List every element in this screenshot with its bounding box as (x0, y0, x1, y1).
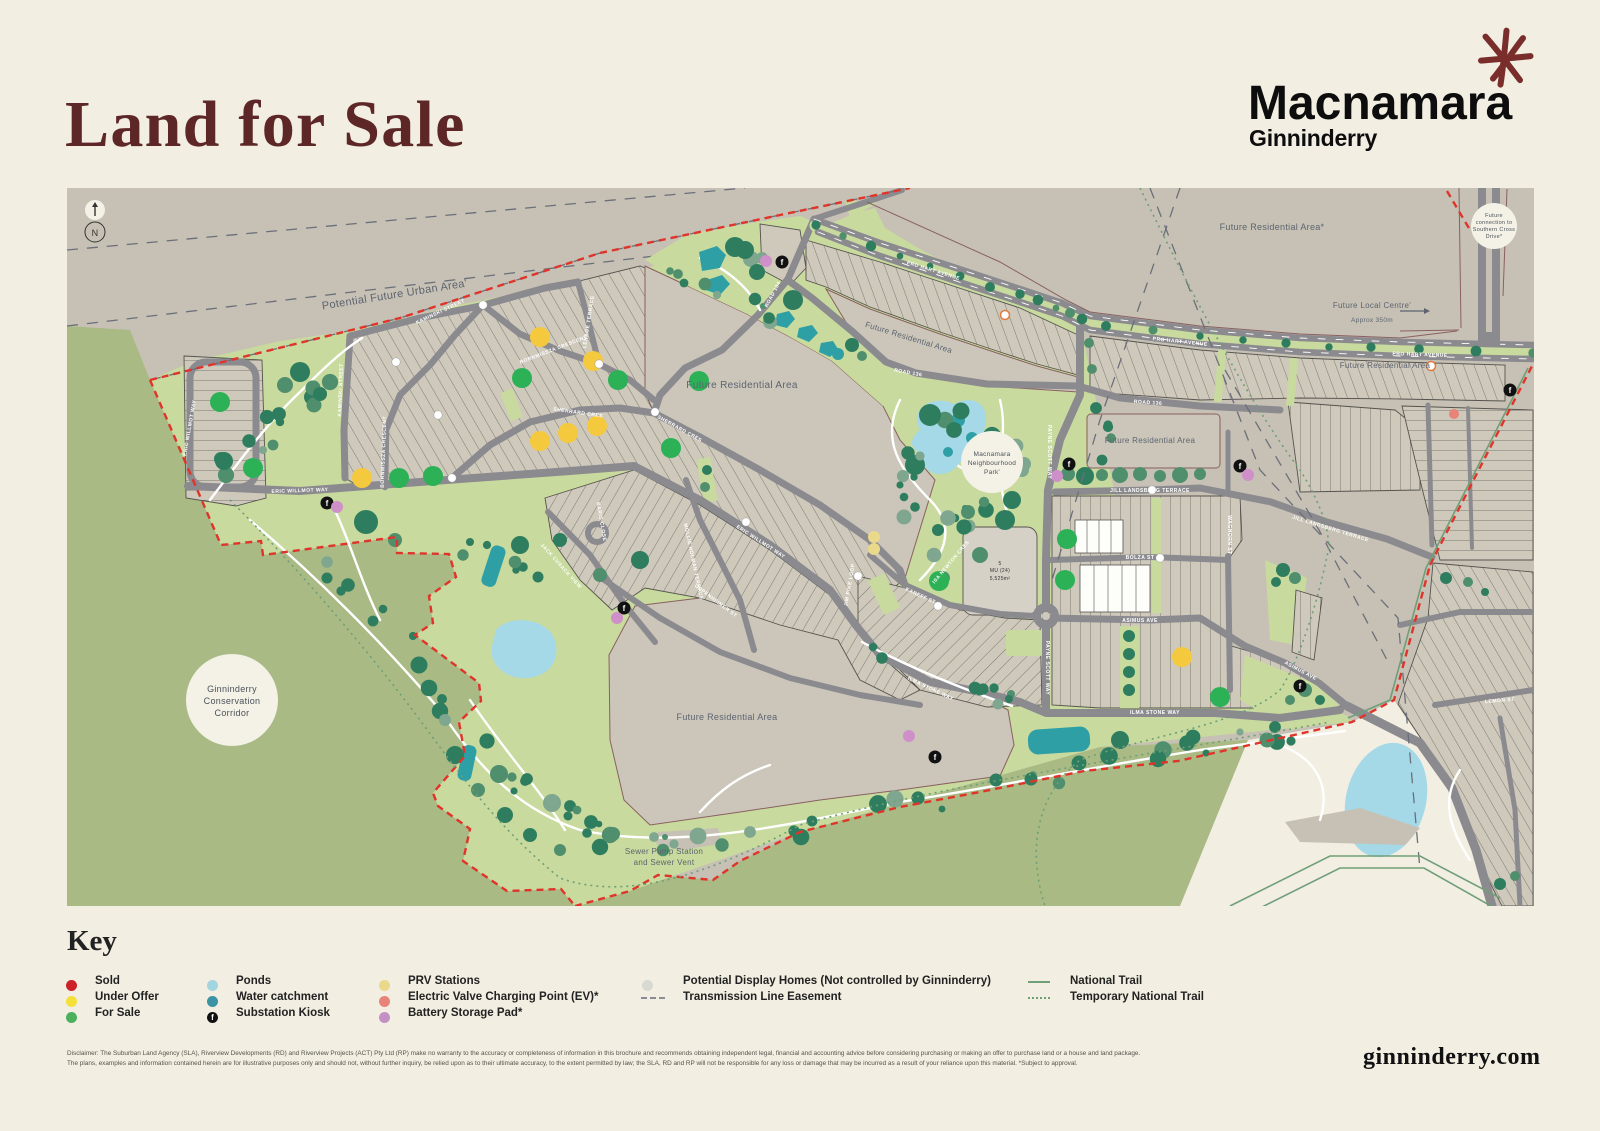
svg-text:Future: Future (1485, 213, 1503, 219)
svg-text:JILL LANDSBERG TERRACE: JILL LANDSBERG TERRACE (1110, 488, 1190, 494)
svg-text:ASIMUS AVE: ASIMUS AVE (1122, 618, 1158, 624)
svg-text:5,525m²: 5,525m² (990, 576, 1010, 582)
svg-text:BOLZA ST: BOLZA ST (1126, 555, 1155, 561)
svg-text:Sewer Pump Station: Sewer Pump Station (625, 847, 703, 856)
svg-text:Future Local Centre': Future Local Centre' (1333, 301, 1411, 310)
svg-text:5: 5 (998, 561, 1001, 567)
svg-text:f: f (1509, 386, 1512, 395)
svg-text:Corridor: Corridor (215, 708, 250, 718)
svg-text:Conservation: Conservation (204, 696, 261, 706)
svg-text:ILMA STONE WAY: ILMA STONE WAY (1130, 710, 1180, 716)
svg-text:Drive*: Drive* (1486, 234, 1503, 240)
svg-text:Ginninderry: Ginninderry (207, 684, 257, 694)
svg-text:f: f (781, 258, 784, 267)
svg-text:Neighbourhood: Neighbourhood (968, 460, 1016, 467)
svg-text:PAYNE SCOTT WAY: PAYNE SCOTT WAY (1044, 641, 1050, 696)
svg-text:Southern Cross: Southern Cross (1473, 227, 1515, 233)
svg-text:f: f (326, 499, 329, 508)
svg-text:f: f (1068, 460, 1071, 469)
svg-text:Future Residential Area: Future Residential Area (677, 712, 778, 722)
svg-text:WAGHORN ST: WAGHORN ST (1226, 515, 1232, 554)
svg-text:f: f (623, 604, 626, 613)
svg-text:Macnamara: Macnamara (973, 451, 1010, 458)
svg-text:Future Residential Area: Future Residential Area (686, 380, 798, 391)
svg-text:MU (24): MU (24) (990, 568, 1010, 574)
svg-text:Approx 350m: Approx 350m (1351, 317, 1393, 324)
svg-text:Future Residential Area: Future Residential Area (1340, 361, 1431, 370)
svg-text:Park': Park' (984, 469, 1000, 476)
svg-text:f: f (1299, 682, 1302, 691)
svg-text:connection to: connection to (1476, 220, 1513, 226)
svg-text:Future Residential Area*: Future Residential Area* (1220, 222, 1325, 232)
svg-text:PAYNE SCOTT WAY: PAYNE SCOTT WAY (1046, 425, 1052, 480)
svg-text:Future Residential Area: Future Residential Area (1105, 436, 1196, 445)
svg-text:f: f (1239, 462, 1242, 471)
svg-text:and Sewer Vent: and Sewer Vent (634, 858, 695, 867)
svg-text:f: f (934, 753, 937, 762)
svg-text:N: N (92, 228, 99, 238)
